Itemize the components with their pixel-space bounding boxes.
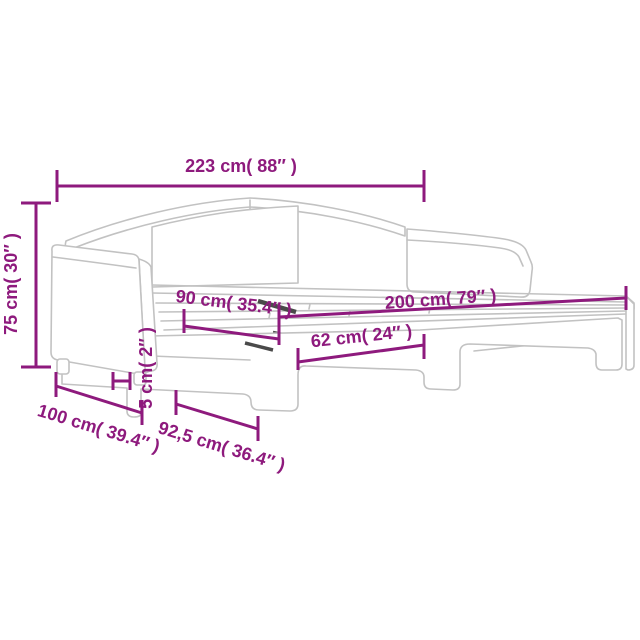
dimension-height: 75 cm( 30″ )	[1, 203, 51, 367]
dimension-label: 5 cm( 2″ )	[136, 327, 156, 409]
dimension-total-length: 223 cm( 88″ )	[57, 156, 424, 202]
product-dimension-diagram: 223 cm( 88″ ) 75 cm( 30″ ) 90 cm( 35.4″ …	[0, 0, 640, 640]
armrest-foot	[57, 359, 69, 374]
diagram-canvas: 223 cm( 88″ ) 75 cm( 30″ ) 90 cm( 35.4″ …	[0, 0, 640, 640]
dimension-label: 92,5 cm( 36.4″ )	[156, 417, 288, 475]
armrest-front-face	[51, 245, 145, 374]
dimension-label: 90 cm( 35.4″ )	[175, 286, 293, 320]
dimension-label: 75 cm( 30″ )	[1, 233, 21, 335]
dimension-label: 223 cm( 88″ )	[185, 156, 297, 176]
